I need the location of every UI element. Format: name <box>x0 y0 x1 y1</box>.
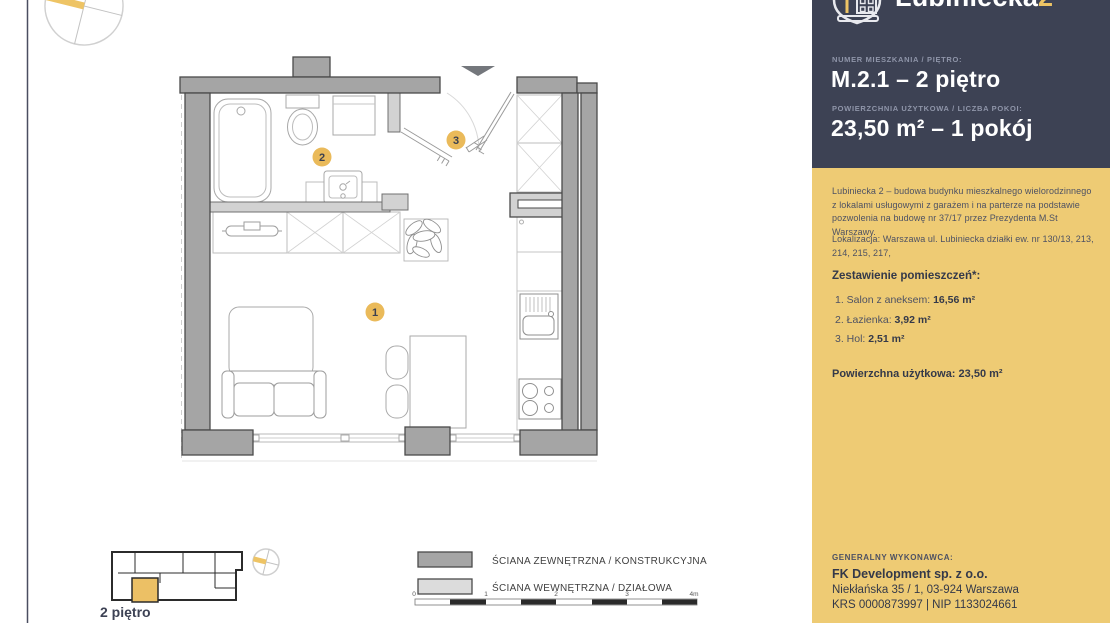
brand-logo: Lubiniecka2 <box>826 0 1053 28</box>
mini-compass <box>250 546 282 578</box>
plant <box>403 217 448 261</box>
room-marker-2: 2 <box>313 148 332 167</box>
kitchen-sink <box>520 294 558 339</box>
apartment-number-label: NUMER MIESZKANIA / PIĘTRO: <box>832 55 962 64</box>
rooms-list: 1. Salon z aneksem: 16,56 m² 2. Łazienka… <box>835 291 975 350</box>
svg-text:4m: 4m <box>689 591 698 598</box>
chairs <box>386 346 408 418</box>
mini-floorplan: 2 piętro <box>100 552 242 620</box>
bathtub <box>214 99 271 202</box>
contractor-address: Niekłańska 35 / 1, 03-924 Warszawa <box>832 583 1019 598</box>
toilet <box>286 95 319 145</box>
total-area: Powierzchna użytkowa: 23,50 m² <box>832 368 1003 380</box>
washing-machine <box>333 96 375 135</box>
svg-text:3: 3 <box>625 591 629 598</box>
hall-wardrobe <box>517 95 562 192</box>
contractor-ids: KRS 0000873997 | NIP 1133024661 <box>832 598 1019 613</box>
contractor-name: FK Development sp. z o.o. <box>832 567 1019 581</box>
legend: ŚCIANA ZEWNĘTRZNA / KONSTRUKCYJNA ŚCIANA… <box>418 552 707 594</box>
svg-text:2: 2 <box>554 591 558 598</box>
legend-label-internal: ŚCIANA WEWNĘTRZNA / DZIAŁOWA <box>492 581 672 594</box>
entrance-arrow-icon <box>461 66 495 76</box>
room-marker-1: 1 <box>366 303 385 322</box>
highlighted-unit <box>132 578 158 602</box>
brand-name: Lubiniecka2 <box>895 0 1053 13</box>
room-item: 3. Hol: 2,51 m² <box>835 330 975 350</box>
room-item: 1. Salon z aneksem: 16,56 m² <box>835 291 975 311</box>
washbasin <box>306 171 377 203</box>
dining-table <box>410 336 466 428</box>
contractor-label: GENERALNY WYKONAWCA: <box>832 553 1019 562</box>
apartment-number-value: M.2.1 – 2 piętro <box>831 66 1000 93</box>
project-location: Lokalizacja: Warszawa ul. Lubiniecka dzi… <box>832 233 1098 260</box>
contractor-block: GENERALNY WYKONAWCA: FK Development sp. … <box>832 553 1019 612</box>
legend-swatch-internal <box>418 579 472 594</box>
apartment-area-value: 23,50 m² – 1 pokój <box>831 115 1033 142</box>
floorplan: 1 2 3 <box>180 57 597 461</box>
apartment-area-label: POWIERZCHNIA UŻYTKOWA / LICZBA POKOI: <box>832 104 1022 113</box>
room-marker-3: 3 <box>447 131 466 150</box>
windows <box>253 434 520 442</box>
legend-swatch-external <box>418 552 472 567</box>
svg-text:3: 3 <box>453 135 459 147</box>
svg-text:0: 0 <box>412 591 416 598</box>
sofa-bed <box>222 307 326 418</box>
panel-header: Lubiniecka2 NUMER MIESZKANIA / PIĘTRO: M… <box>812 0 1110 168</box>
info-panel: Lubiniecka2 NUMER MIESZKANIA / PIĘTRO: M… <box>812 0 1110 623</box>
legend-label-external: ŚCIANA ZEWNĘTRZNA / KONSTRUKCYJNA <box>492 554 707 567</box>
kitchen-stove <box>519 379 561 419</box>
svg-text:1: 1 <box>484 591 488 598</box>
brand-crest-icon <box>826 0 888 28</box>
floorplan-sheet: 1 2 3 2 piętro ŚCIANA <box>0 0 812 623</box>
north-compass <box>37 0 132 53</box>
bathroom-door <box>401 128 487 166</box>
rooms-heading: Zestawienie pomieszczeń*: <box>832 270 980 282</box>
floor-label: 2 piętro <box>100 604 151 620</box>
project-description: Lubiniecka 2 – budowa budynku mieszkalne… <box>832 185 1098 239</box>
svg-text:1: 1 <box>372 307 378 319</box>
room-item: 2. Łazienka: 3,92 m² <box>835 311 975 331</box>
svg-text:2: 2 <box>319 152 325 164</box>
